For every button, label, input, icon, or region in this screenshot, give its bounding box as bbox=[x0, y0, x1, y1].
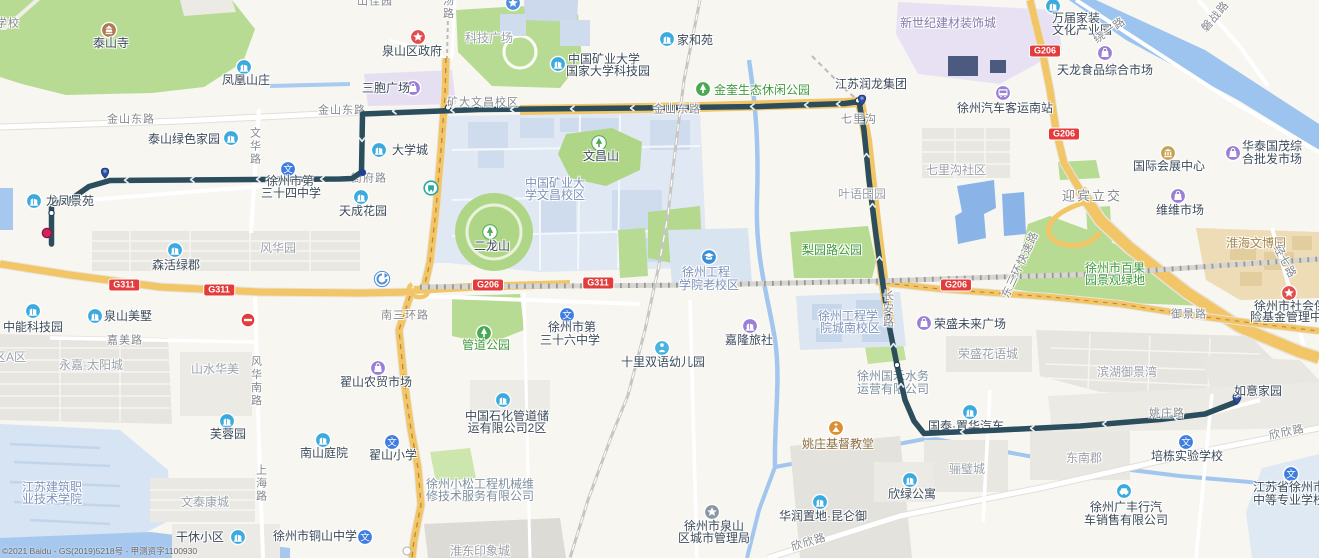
svg-text:文: 文 bbox=[1286, 469, 1296, 481]
svg-text:文: 文 bbox=[387, 437, 397, 449]
svg-text:文: 文 bbox=[1181, 437, 1191, 449]
svg-text:文: 文 bbox=[360, 532, 370, 544]
